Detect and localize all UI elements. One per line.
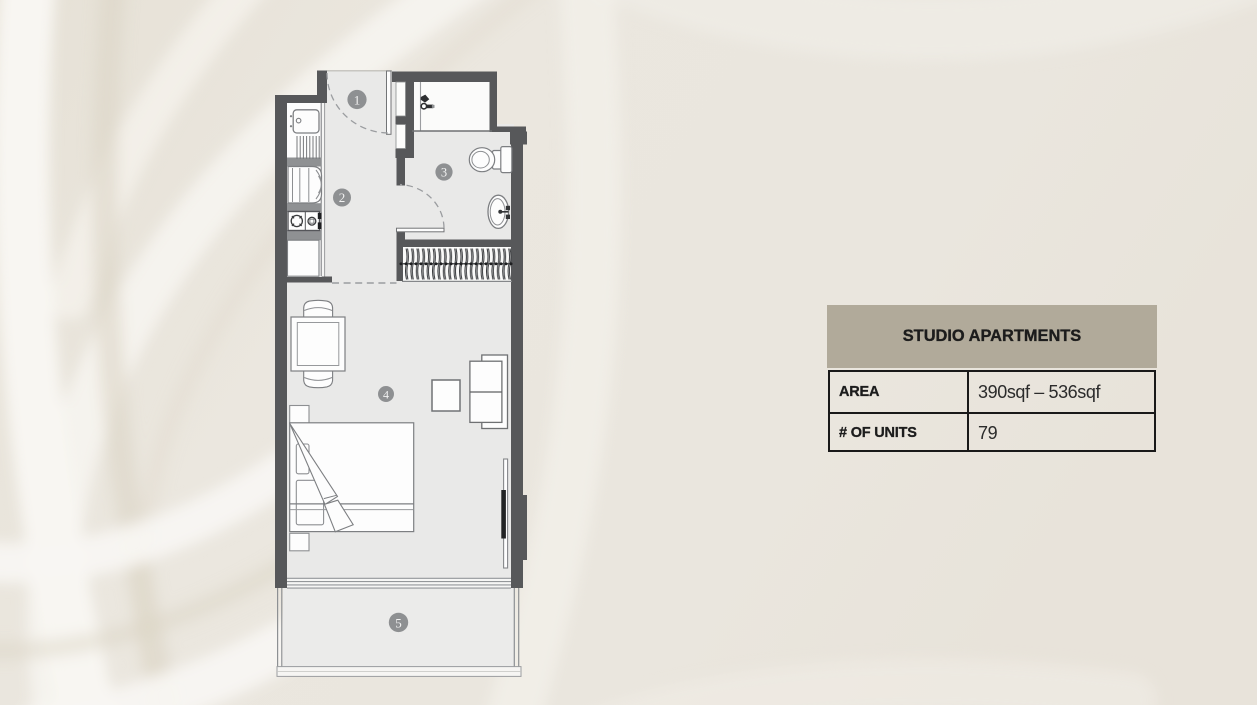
- svg-text:1: 1: [354, 92, 361, 107]
- svg-text:2: 2: [339, 190, 346, 205]
- svg-text:5: 5: [395, 615, 402, 630]
- svg-text:4: 4: [383, 387, 389, 401]
- svg-text:3: 3: [441, 166, 447, 180]
